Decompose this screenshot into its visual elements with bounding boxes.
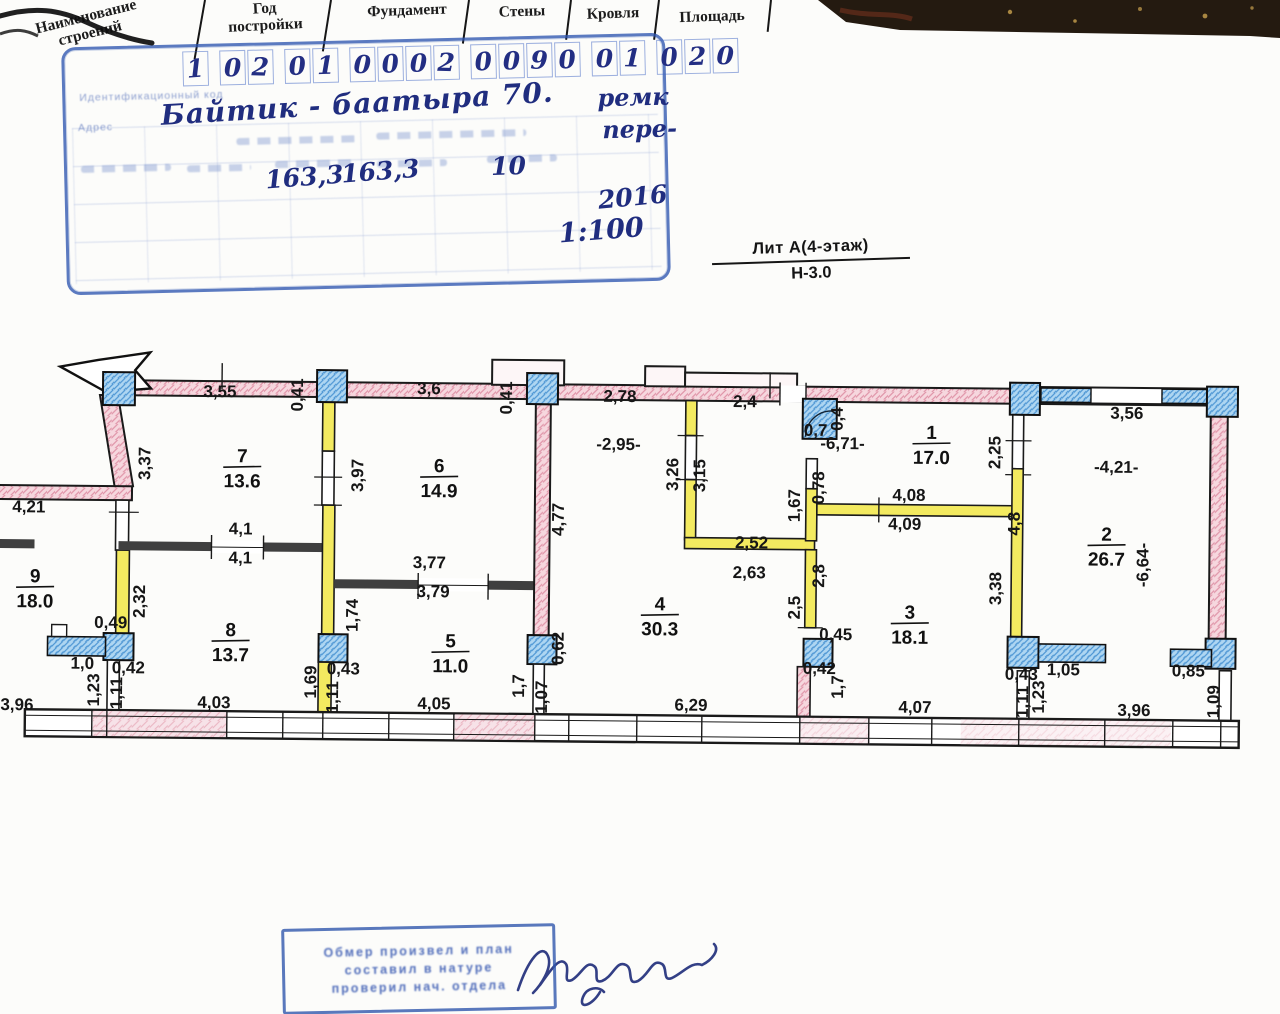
room-area: 18.0 xyxy=(16,591,53,612)
dimension-label: 1,0 xyxy=(70,654,94,673)
dimension-label: 2,25 xyxy=(985,436,1004,469)
room-label-underline xyxy=(223,466,261,467)
dimension-label: 3,38 xyxy=(986,572,1005,605)
dimension-label: 2,52 xyxy=(735,533,768,552)
dimension-label: 1,67 xyxy=(785,489,804,522)
room-area: 13.7 xyxy=(212,645,249,666)
dimension-label: 0,43 xyxy=(327,659,360,678)
room-number: 5 xyxy=(445,631,456,652)
dimension-label: 1,23 xyxy=(1029,680,1048,713)
dimension-label: 4,09 xyxy=(888,515,921,534)
dimension-label: 6,29 xyxy=(674,695,707,714)
room-number: 2 xyxy=(1101,525,1112,546)
verification-stamp-line: Обмер произвел и план xyxy=(285,941,553,961)
room-area: 13.6 xyxy=(224,471,261,492)
dimension-label: 1,11 xyxy=(323,681,342,713)
paper-edge-curve xyxy=(0,10,152,43)
room-number: 7 xyxy=(237,446,248,467)
dimension-label: 3,79 xyxy=(416,582,449,601)
dimension-label: 3,96 xyxy=(1117,701,1150,720)
dimension-label: 4,1 xyxy=(229,519,253,538)
floor-plan: 3,550,413,60,412,782,40,70,43,56-6,71-2,… xyxy=(0,0,1280,1014)
room-label-underline xyxy=(913,443,951,444)
dimension-label: 1,69 xyxy=(301,665,320,698)
dimension-label: 2,32 xyxy=(130,585,149,618)
dimension-label: 1,07 xyxy=(532,681,551,714)
dimension-label: 4,05 xyxy=(417,694,450,713)
room-area: 30.3 xyxy=(641,619,678,640)
dimension-label: 1,09 xyxy=(1204,685,1223,718)
room-area: 14.9 xyxy=(420,481,457,502)
desk-background xyxy=(818,0,1280,38)
dimension-label: 0,45 xyxy=(819,625,852,644)
room-number: 6 xyxy=(434,456,445,477)
scanned-floorplan-page: Наименование строений Год постройки Фунд… xyxy=(0,0,1280,1014)
dimension-label: 0,4 xyxy=(828,407,847,431)
room-number: 9 xyxy=(30,566,41,587)
dimension-label: 3,97 xyxy=(348,459,367,492)
dimension-label: 0,85 xyxy=(1172,661,1205,680)
dimension-label: 4,08 xyxy=(892,486,925,505)
dimension-label: 4,21 xyxy=(12,497,45,516)
room-number: 3 xyxy=(904,603,915,624)
dimension-label: 3,56 xyxy=(1110,404,1143,423)
plan-walls: 3,550,413,60,412,782,40,70,43,56-6,71-2,… xyxy=(0,351,1242,748)
dimension-label: 3,15 xyxy=(690,459,709,492)
dimension-label: 0,42 xyxy=(803,659,836,678)
dimension-label: 0,62 xyxy=(548,632,567,665)
dimension-label: 2,78 xyxy=(603,387,636,406)
room-area: 26.7 xyxy=(1088,549,1125,570)
room-label-underline xyxy=(641,614,679,615)
dimension-label: 3,37 xyxy=(135,447,154,480)
dimension-label: 1,11 xyxy=(107,677,126,709)
dimension-label: 2,8 xyxy=(809,564,828,588)
dimension-label: -4,21- xyxy=(1094,457,1139,476)
room-label-underline xyxy=(212,640,250,641)
dimension-label: 0,41 xyxy=(497,381,516,414)
dimension-label: 4,8 xyxy=(1005,512,1024,536)
room-area: 18.1 xyxy=(891,628,929,649)
dimension-label: 3,55 xyxy=(203,382,236,401)
dimension-label: -2,95- xyxy=(596,435,641,454)
dimension-label: 2,4 xyxy=(733,392,757,411)
dimension-label: 1,74 xyxy=(343,598,362,632)
room-number: 1 xyxy=(926,423,937,444)
dimension-label: 3,6 xyxy=(417,379,441,398)
dimension-label: 3,77 xyxy=(413,553,446,572)
verification-stamp-line: составил в натуре xyxy=(285,959,553,979)
room-number: 8 xyxy=(225,620,236,641)
room-label-underline xyxy=(420,476,458,477)
room-number: 4 xyxy=(655,594,666,615)
dimension-label: 3,96 xyxy=(0,695,33,714)
dimension-label: 4,77 xyxy=(549,503,568,536)
dimension-label: 0,49 xyxy=(94,613,127,632)
dimension-label: -6,71- xyxy=(820,434,865,453)
dimension-label: 1,7 xyxy=(828,675,847,699)
room-area: 11.0 xyxy=(432,656,468,677)
room-label-underline xyxy=(431,651,469,652)
dimension-label: 0,42 xyxy=(112,658,145,677)
dimension-label: 0,78 xyxy=(809,471,828,504)
dimension-label: 4,03 xyxy=(197,693,230,712)
room-label-underline xyxy=(1088,544,1126,545)
dimension-label: 1,23 xyxy=(84,673,103,706)
room-label-underline xyxy=(16,586,54,587)
dimension-label: 1,7 xyxy=(509,674,528,698)
dimension-label: 2,5 xyxy=(785,596,804,620)
dimension-label: 0,41 xyxy=(288,378,307,411)
room-label-underline xyxy=(891,623,929,624)
dimension-label: 3,26 xyxy=(663,458,682,491)
dimension-label: -6,64- xyxy=(1133,543,1152,588)
dimension-label: 4,1 xyxy=(228,548,252,567)
verification-stamp-line: проверил нач. отдела xyxy=(285,977,553,997)
dimension-label: 1,05 xyxy=(1047,660,1080,679)
dimension-label: 2,63 xyxy=(733,563,766,582)
verification-stamp: Обмер произвел и план составил в натуре … xyxy=(281,923,557,1014)
dimension-label: 4,07 xyxy=(898,698,931,717)
room-area: 17.0 xyxy=(913,448,950,469)
